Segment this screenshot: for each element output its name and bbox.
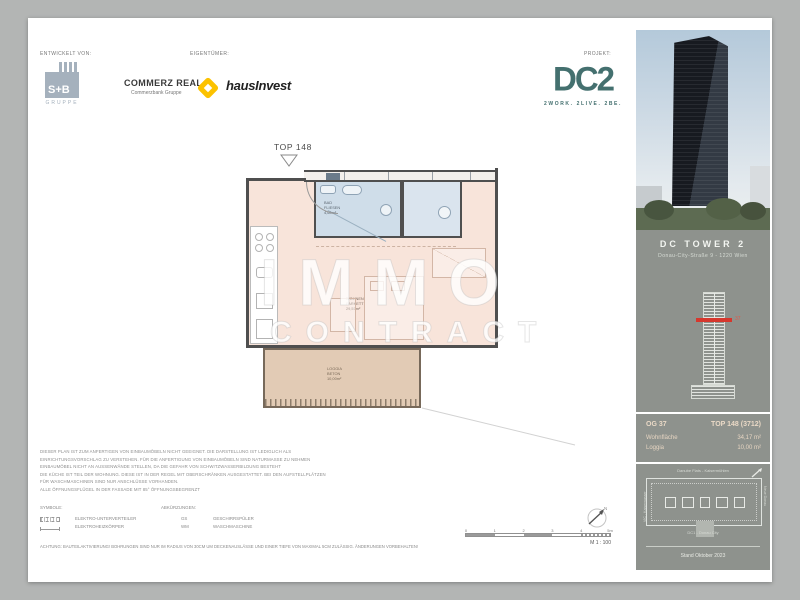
divider [646, 546, 760, 547]
scale-tick: 4 [580, 528, 582, 533]
entry-marker-icon [280, 154, 298, 167]
dc2-logo: DC2 2WORK. 2LIVE. 2BE. [532, 60, 634, 112]
watermark-line2: CONTRACT [270, 316, 550, 350]
dc2-wordmark: DC2 [532, 59, 634, 99]
document-sheet: ENTWICKELT VON: EIGENTÜMER: PROJEKT: S+B… [28, 18, 772, 582]
hob-burner-icon [266, 233, 274, 241]
abbrev-label: WASCHMASCHINE [213, 524, 252, 529]
commerz-real-wordmark: COMMERZ REAL [124, 78, 202, 88]
scale-tick: 2 [522, 528, 524, 533]
info-row-value: 10,00 m² [737, 445, 761, 451]
abbrev-label: GESCHIRRSPÜLER [213, 516, 254, 521]
building-address: Donau-City-Straße 9 - 1220 Wien [636, 253, 770, 259]
abbrev-key: GS [181, 516, 187, 521]
warning-note: ACHTUNG: BAUTEILAKTIVIERUNG! BOHRUNGEN S… [40, 544, 418, 549]
sb-logo-square: S+B [45, 72, 79, 98]
siteplan-label-left: VIC - Kaiserwasser [643, 491, 647, 522]
info-row-value: 34,17 m² [737, 435, 761, 441]
building-photo [636, 30, 770, 230]
hob-burner-icon [255, 233, 263, 241]
sb-logo-sub: GRUPPE [45, 100, 79, 106]
floor-marker-label: 37 [735, 316, 741, 322]
sink-icon [438, 206, 451, 219]
unit-number-label: TOP 148 [274, 142, 312, 152]
siteplan-panel: Danube Flats - Kaisermühlen VIC - Kaiser… [636, 464, 770, 570]
unit-info-panel: OG 37 TOP 148 (3712) Wohnfläche 34,17 m²… [636, 414, 770, 462]
owner-logos: COMMERZ REAL Commerzbank Gruppe hausInve… [124, 76, 324, 112]
info-row-label: Loggia [646, 445, 664, 451]
sb-gruppe-logo: S+B GRUPPE [45, 62, 79, 108]
legal-text: DIESER PLAN IST ZUM ANFERTIGEN VON EINBA… [40, 448, 326, 494]
photo-trees [636, 208, 770, 230]
elevation-panel: 37 [636, 266, 770, 412]
floor-marker [696, 318, 732, 322]
watermark-line1: IMMO [260, 244, 520, 320]
elevation-tower [703, 292, 725, 385]
wall-left [246, 178, 249, 348]
wall-top-left [246, 178, 306, 181]
elevation-base [691, 385, 735, 399]
electric-radiator-icon [40, 527, 60, 530]
scale-tick: 3 [551, 528, 553, 533]
stand-date: Stand Oktober 2023 [636, 553, 770, 559]
scale-bar: 0 1 2 3 4 5m [465, 533, 611, 537]
sidebar-title-band: DC TOWER 2 Donau-City-Straße 9 - 1220 Wi… [636, 230, 770, 266]
commerzbank-gruppe-label: Commerzbank Gruppe [131, 90, 182, 96]
bathtub-icon [342, 185, 362, 195]
siteplan-box [646, 478, 762, 526]
sb-logo-bars-icon [57, 62, 77, 72]
symbol-label: ELEKTRO-UNTERVERTEILER [75, 516, 136, 521]
svg-text:N: N [604, 506, 607, 511]
canvas: ENTWICKELT VON: EIGENTÜMER: PROJEKT: S+B… [0, 0, 800, 600]
abbrev-heading: ABKÜRZUNGEN: [161, 505, 196, 510]
siteplan-label-top: Danube Flats - Kaisermühlen [636, 468, 770, 473]
loggia: LOGGIA BETON 10,00m² [263, 348, 421, 408]
tower-silhouette [672, 36, 728, 206]
scale-tick: 0 [465, 528, 467, 533]
scale-ratio-label: M 1 : 100 [573, 540, 611, 546]
owner-label: EIGENTÜMER: [190, 51, 229, 57]
scale-tick: 5m [607, 528, 613, 533]
abbrev-key: WM [181, 524, 189, 529]
electro-subdistributor-icon [40, 517, 60, 522]
symbols-heading: SYMBOLE: [40, 505, 62, 510]
info-unit: TOP 148 (3712) [711, 421, 761, 428]
hausinvest-wordmark: hausInvest [226, 78, 291, 93]
project-label: PROJEKT: [584, 51, 611, 57]
developed-by-label: ENTWICKELT VON: [40, 51, 91, 57]
shaft-band [304, 170, 496, 180]
info-floor: OG 37 [646, 421, 667, 428]
loggia-label: LOGGIA BETON 10,00m² [327, 366, 342, 381]
commerzbank-logo-icon [196, 76, 222, 102]
building-name: DC TOWER 2 [636, 239, 770, 249]
scale-tick: 1 [494, 528, 496, 533]
siteplan-label-bottom: DC1 - Donau City [636, 530, 770, 535]
symbol-label: ELEKTROHEIZKÖRPER [75, 524, 124, 529]
toilet-icon [380, 204, 392, 216]
wc-room [402, 180, 462, 238]
siteplan-label-right: Neue Donau [763, 486, 767, 506]
dc2-tagline: 2WORK. 2LIVE. 2BE. [532, 101, 634, 107]
north-arrow-icon: N [582, 504, 610, 530]
loggia-railing [265, 399, 419, 406]
info-row-label: Wohnfläche [646, 435, 678, 441]
